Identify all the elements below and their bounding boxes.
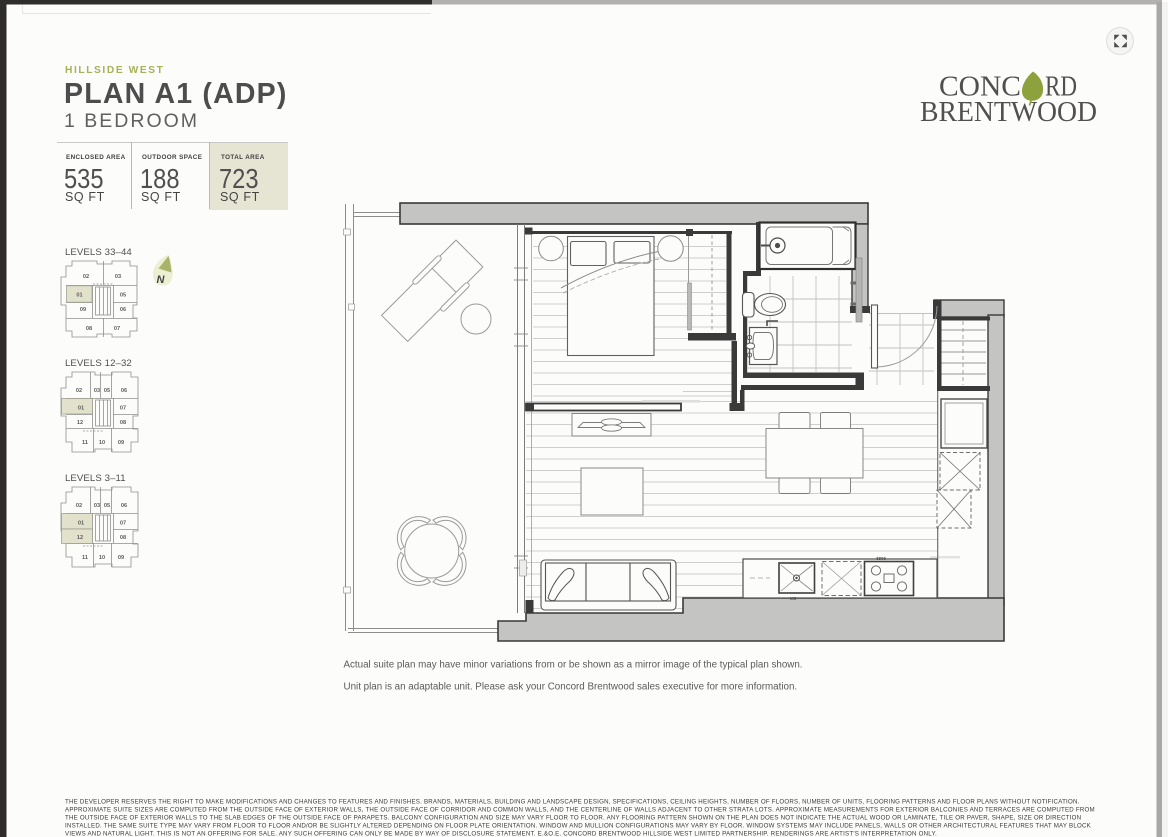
svg-text:LEVELS 33–44: LEVELS 33–44 [65,247,132,258]
svg-text:N: N [157,274,166,286]
svg-text:08: 08 [120,420,126,426]
svg-text:LEVELS 3–11: LEVELS 3–11 [65,473,126,484]
svg-text:11: 11 [82,440,88,446]
svg-text:09: 09 [118,440,124,446]
svg-text:05: 05 [104,503,110,509]
svg-text:09: 09 [118,555,124,561]
svg-text:02: 02 [76,503,82,509]
svg-text:SQ FT: SQ FT [220,190,260,204]
svg-text:TOTAL AREA: TOTAL AREA [221,154,265,161]
svg-text:SQ FT: SQ FT [65,190,105,204]
svg-text:PLAN A1 (ADP): PLAN A1 (ADP) [64,78,288,110]
svg-text:07: 07 [114,326,120,332]
svg-text:12: 12 [77,535,83,541]
svg-text:BRENTWOOD: BRENTWOOD [920,96,1097,128]
svg-text:06: 06 [121,503,127,509]
svg-text:01: 01 [78,406,84,412]
svg-text:06: 06 [121,388,127,394]
svg-text:10: 10 [99,440,105,446]
svg-text:HILLSIDE WEST: HILLSIDE WEST [65,65,164,76]
svg-text:12: 12 [77,420,83,426]
svg-text:09: 09 [80,307,86,313]
svg-text:06: 06 [120,307,126,313]
svg-text:01: 01 [76,293,82,299]
svg-text:LEVELS 12–32: LEVELS 12–32 [65,358,132,369]
svg-text:THE OUTSIDE FACE OF EXTERIOR W: THE OUTSIDE FACE OF EXTERIOR WALLS TO TH… [65,815,1081,822]
svg-text:03: 03 [94,388,100,394]
svg-text:ENCLOSED AREA: ENCLOSED AREA [66,154,126,161]
svg-text:Unit plan is an adaptable unit: Unit plan is an adaptable unit. Please a… [344,682,798,693]
svg-text:02: 02 [76,388,82,394]
svg-text:VIEWS AND NATURAL LIGHT. THIS: VIEWS AND NATURAL LIGHT. THIS IS NOT AN … [65,831,937,837]
svg-text:APPROXIMATE SUITE SIZES ARE CO: APPROXIMATE SUITE SIZES ARE COMPUTED FRO… [65,807,1095,814]
svg-text:10: 10 [99,555,105,561]
svg-text:Actual suite plan may have min: Actual suite plan may have minor variati… [344,660,803,671]
svg-text:08: 08 [120,535,126,541]
svg-text:3806: 3806 [876,556,887,561]
svg-text:07: 07 [120,521,126,527]
svg-text:THE DEVELOPER RESERVES THE RIG: THE DEVELOPER RESERVES THE RIGHT TO MAKE… [65,799,1080,806]
svg-text:07: 07 [120,406,126,412]
svg-text:INSTALLED. THE SAME SUITE TYPE: INSTALLED. THE SAME SUITE TYPE MAY VARY … [65,823,1092,830]
svg-text:01: 01 [78,521,84,527]
svg-text:08: 08 [86,326,92,332]
svg-text:SQ FT: SQ FT [141,190,181,204]
svg-text:03: 03 [94,503,100,509]
svg-text:11: 11 [82,555,88,561]
svg-text:03: 03 [115,274,121,280]
svg-text:OUTDOOR SPACE: OUTDOOR SPACE [142,154,202,161]
svg-text:05: 05 [104,388,110,394]
svg-text:1 BEDROOM: 1 BEDROOM [64,110,199,132]
svg-text:05: 05 [120,293,126,299]
svg-text:M3: M3 [790,596,797,601]
svg-text:02: 02 [83,274,89,280]
